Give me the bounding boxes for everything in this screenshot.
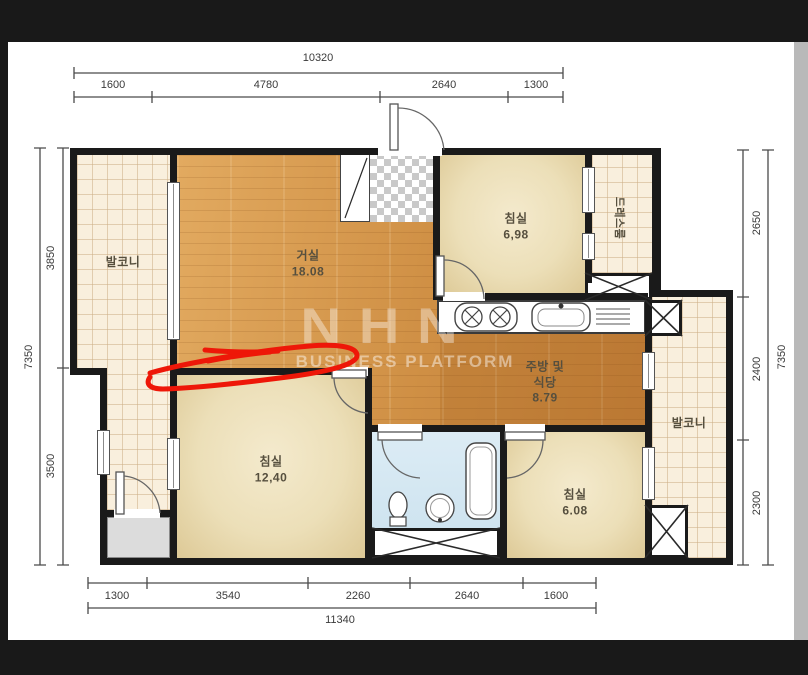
dim-bottom-seg5: 1600 — [544, 590, 568, 602]
dim-right-seg1: 2650 — [751, 211, 763, 235]
floor-balcony-left-lower — [107, 375, 170, 510]
room-name: 식당 — [526, 375, 564, 391]
opening-balcony-left — [114, 509, 160, 518]
window-kitchen-balcony — [642, 352, 655, 390]
wall-entrance-right — [433, 148, 440, 300]
room-label-bedroom-top: 침실 6,98 — [503, 211, 528, 242]
window-dressroom-1 — [582, 167, 595, 213]
wall-left-upper — [70, 148, 77, 375]
entrance-door-arc — [398, 108, 444, 150]
window-bedroom-balcony — [167, 438, 180, 490]
watermark-subtitle: BUSINESS PLATFORM — [296, 352, 515, 372]
room-area: 8.79 — [526, 391, 564, 407]
room-label-living: 거실 18.08 — [292, 248, 325, 279]
wall-right-outer — [726, 290, 733, 565]
opening-bathroom — [378, 424, 422, 433]
window-left-outer — [97, 430, 110, 475]
dim-top-overall: 10320 — [303, 52, 334, 64]
room-label-bedroom-right: 침실 6.08 — [562, 487, 587, 518]
dim-top-seg4: 1300 — [524, 79, 548, 91]
shoe-cabinet — [340, 152, 370, 222]
room-name: 주방 및 — [526, 360, 564, 376]
wall-bedroom-left-right — [365, 368, 372, 558]
dim-bottom-seg2: 3540 — [216, 590, 240, 602]
dim-top-seg1: 1600 — [101, 79, 125, 91]
dim-bottom-seg3: 2260 — [346, 590, 370, 602]
opening-entrance — [378, 147, 442, 156]
floor-plan-screenshot: NHN BUSINESS PLATFORM — [0, 0, 808, 675]
bottom-black-bar — [0, 640, 808, 675]
window-bedroom-right-balcony — [642, 447, 655, 500]
dim-bottom-seg4: 2640 — [455, 590, 479, 602]
window-dressroom-2 — [582, 233, 595, 260]
entrance-door-leaf — [390, 104, 398, 150]
dim-bottom-overall: 11340 — [325, 614, 355, 626]
wall-right-upper — [652, 148, 661, 290]
room-name: 거실 — [292, 248, 325, 264]
room-label-balcony-right: 발코니 — [672, 416, 707, 432]
wall-balcony-right-top — [652, 290, 733, 297]
room-label-balcony-left: 발코니 — [106, 255, 141, 271]
right-gray-strip — [794, 42, 808, 640]
room-label-dressroom: 드레스룸 — [612, 197, 626, 239]
room-label-kitchen: 주방 및 식당 8.79 — [526, 360, 564, 407]
room-label-bedroom-left: 침실 12,40 — [255, 454, 288, 485]
dim-right-seg2: 2400 — [751, 357, 763, 381]
floor-entrance-checker — [370, 152, 433, 222]
floor-bathroom — [372, 432, 500, 528]
wall-bath-bedroom-right — [500, 425, 507, 565]
dim-right-seg3: 2300 — [751, 491, 763, 515]
room-area: 6,98 — [503, 227, 528, 243]
dim-left-overall: 7350 — [23, 345, 35, 369]
dim-left-seg1: 3850 — [45, 246, 57, 270]
dim-bottom-seg1: 1300 — [105, 590, 129, 602]
wall-top — [70, 148, 661, 155]
window-living-balcony — [167, 182, 180, 340]
room-area: 6.08 — [562, 503, 587, 519]
wall-bottom — [100, 558, 733, 565]
room-name: 침실 — [255, 454, 288, 470]
room-name: 침실 — [562, 487, 587, 503]
utility-gray-square — [107, 517, 170, 558]
opening-bedroom-right — [505, 424, 545, 433]
top-black-bar — [0, 0, 808, 42]
dim-right-overall: 7350 — [776, 345, 788, 369]
room-area: 12,40 — [255, 470, 288, 486]
shaft-bathroom — [372, 528, 500, 558]
room-area: 18.08 — [292, 264, 325, 280]
dim-left-seg2: 3500 — [45, 454, 57, 478]
watermark-logo: NHN — [300, 297, 475, 355]
room-name: 침실 — [503, 211, 528, 227]
dim-top-seg2: 4780 — [254, 79, 278, 91]
dim-top-seg3: 2640 — [432, 79, 456, 91]
left-black-strip — [0, 42, 8, 640]
